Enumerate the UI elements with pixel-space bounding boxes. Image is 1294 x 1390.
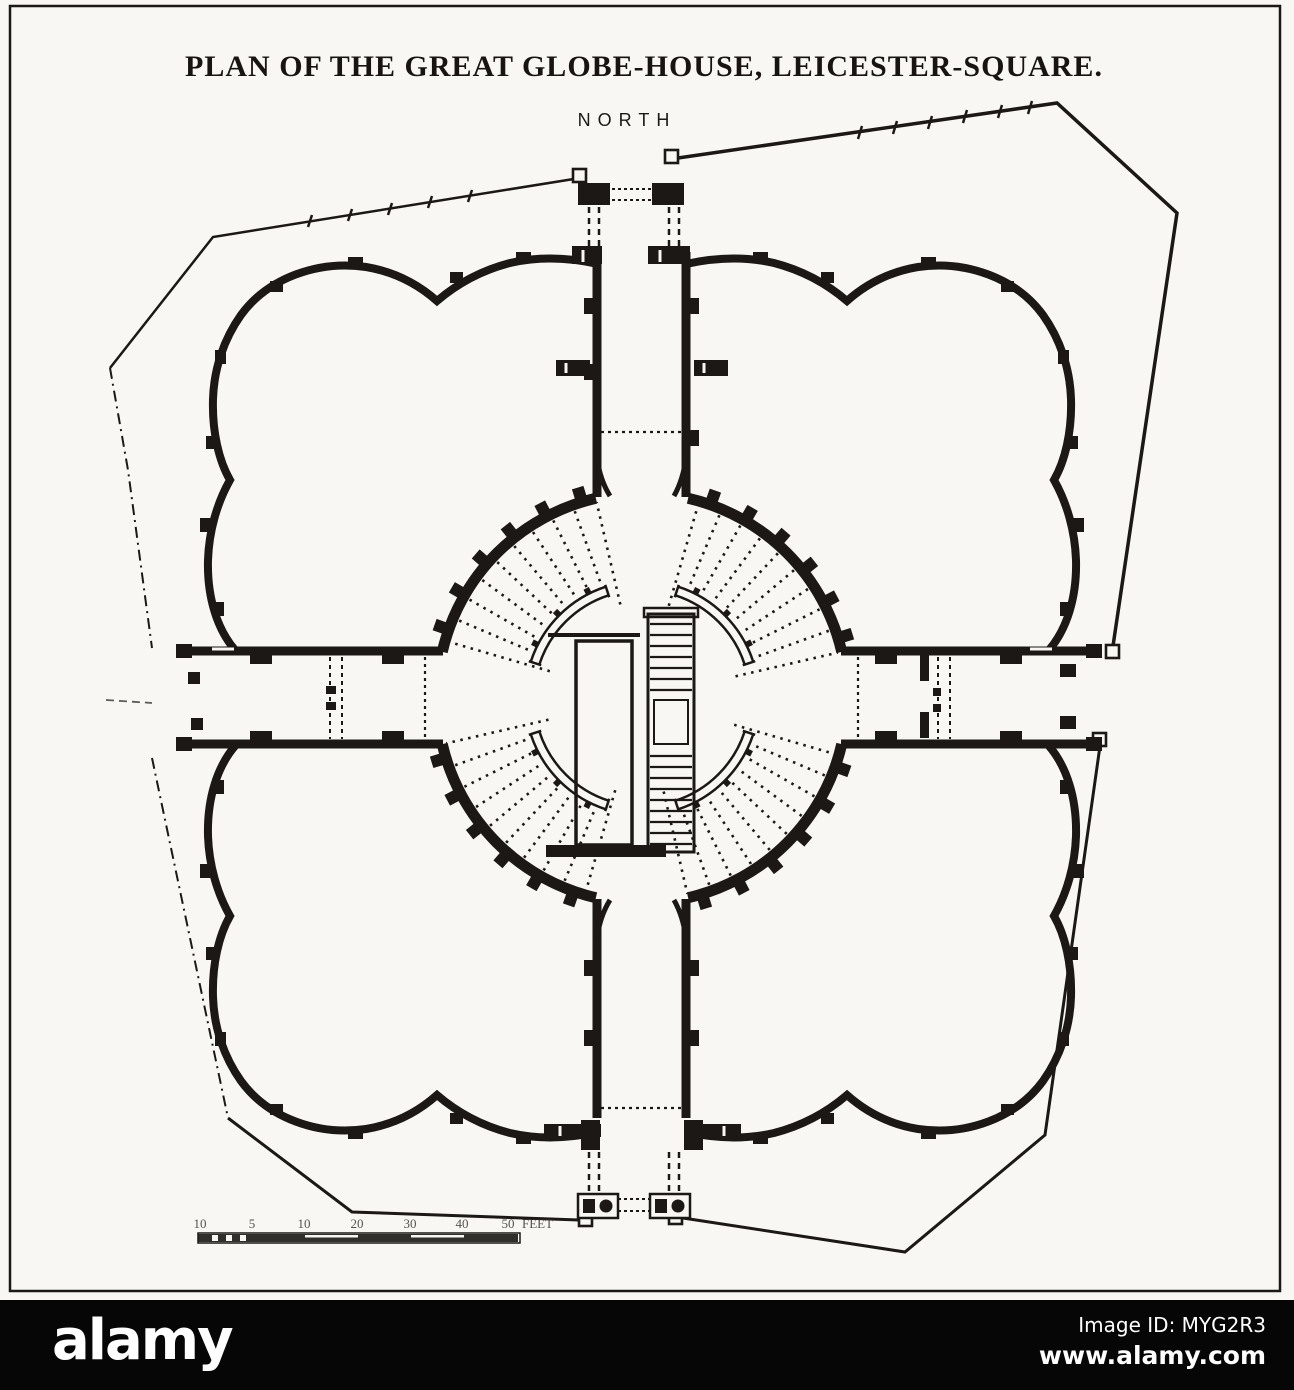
south-entrance-pavilion <box>544 1120 741 1218</box>
scale-tick-label: 30 <box>404 1216 417 1231</box>
watermark-info: Image ID: MYG2R3 www.alamy.com <box>1039 1310 1266 1372</box>
floor-plan-drawing: PLAN OF THE GREAT GLOBE-HOUSE, LEICESTER… <box>0 0 1294 1300</box>
watermark-bar: alamy Image ID: MYG2R3 www.alamy.com <box>0 1300 1294 1390</box>
scanned-page: PLAN OF THE GREAT GLOBE-HOUSE, LEICESTER… <box>0 0 1294 1390</box>
wing-southeast <box>686 746 1084 1144</box>
scale-tick-label: 5 <box>249 1216 256 1231</box>
scale-tick-label: 20 <box>351 1216 364 1231</box>
north-entrance-pavilion <box>572 183 690 264</box>
south-corridor <box>584 899 699 1118</box>
east-corridor <box>841 644 1102 751</box>
plan-title: PLAN OF THE GREAT GLOBE-HOUSE, LEICESTER… <box>185 50 1103 83</box>
scale-unit-label: FEET <box>522 1216 553 1231</box>
wing-northwest <box>200 252 598 650</box>
wing-southwest <box>200 746 598 1144</box>
staircase-treads <box>650 624 692 844</box>
alamy-url-text: www.alamy.com <box>1039 1340 1266 1372</box>
image-id-text: Image ID: MYG2R3 <box>1039 1310 1266 1340</box>
scale-tick-label: 50 <box>502 1216 515 1231</box>
scale-bar: 10 5 10 20 30 40 50 FEET <box>194 1216 554 1243</box>
alamy-logo: alamy <box>52 1308 232 1373</box>
central-core <box>546 608 698 857</box>
west-corridor <box>176 644 443 751</box>
site-boundary <box>106 101 1177 1252</box>
scale-tick-label: 40 <box>456 1216 469 1231</box>
wing-northeast <box>686 252 1084 650</box>
scale-tick-label: 10 <box>194 1216 207 1231</box>
scale-tick-label: 10 <box>298 1216 311 1231</box>
north-label: NORTH <box>578 110 677 130</box>
north-corridor <box>556 252 728 497</box>
